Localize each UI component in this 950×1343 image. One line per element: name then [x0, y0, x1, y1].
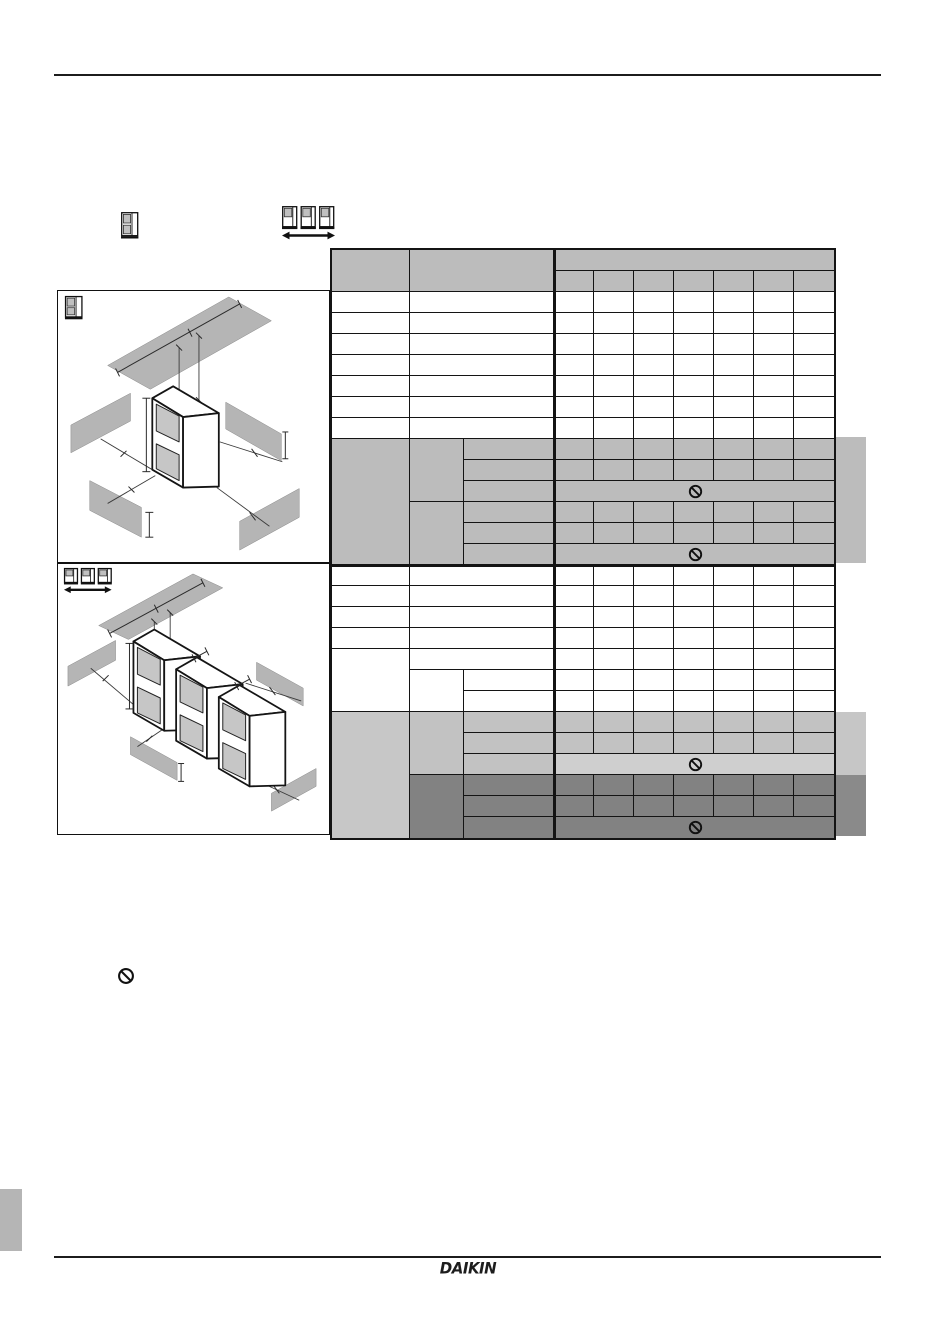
- table-cell-empty: [554, 376, 594, 397]
- table-cell-empty: [714, 607, 754, 628]
- table-cell-empty: [594, 523, 634, 544]
- table-cell-empty: [554, 628, 594, 649]
- table-cell-empty: [594, 691, 634, 712]
- table-cell-empty: [410, 712, 464, 775]
- table-cell-empty: [634, 502, 674, 523]
- table-cell-empty: [332, 628, 410, 649]
- wall-lower-left: [90, 481, 142, 538]
- table-cell-empty: [674, 376, 714, 397]
- table-cell-empty: [634, 439, 674, 460]
- table-cell-empty: [554, 271, 594, 292]
- ceiling-plane: [108, 297, 272, 389]
- table-cell-empty: [754, 586, 794, 607]
- clearance-spec-table: [330, 248, 836, 840]
- table-cell-empty: [594, 733, 634, 754]
- table-cell-empty: [554, 586, 594, 607]
- table-cell-empty: [634, 775, 674, 796]
- table-cell-empty: [634, 271, 674, 292]
- outdoor-unit-3: [219, 685, 286, 786]
- table-cell-empty: [754, 292, 794, 313]
- table-cell-empty: [714, 439, 754, 460]
- table-cell-empty: [634, 586, 674, 607]
- table-cell-empty: [410, 586, 554, 607]
- prohibition-icon: [688, 820, 703, 835]
- table-cell-empty: [714, 313, 754, 334]
- table-cell-empty: [554, 250, 834, 271]
- table-cell-empty: [410, 502, 464, 565]
- table-cell-empty: [794, 397, 834, 418]
- top-rule: [54, 74, 881, 76]
- table-cell-empty: [794, 649, 834, 670]
- table-cell-empty: [754, 502, 794, 523]
- table-cell-empty: [554, 502, 594, 523]
- table-cell-empty: [464, 460, 554, 481]
- table-cell-empty: [332, 607, 410, 628]
- prohibition-icon: [688, 484, 703, 499]
- table-cell-empty: [674, 628, 714, 649]
- three-unit-row-icon-small: [64, 569, 112, 594]
- table-cell-empty: [714, 460, 754, 481]
- table-cell-empty: [754, 355, 794, 376]
- table-cell-empty: [714, 670, 754, 691]
- table-cell-empty: [594, 334, 634, 355]
- table-cell-empty: [464, 817, 554, 838]
- table-cell-empty: [754, 460, 794, 481]
- unit-1: [282, 207, 297, 229]
- table-cell-empty: [554, 292, 594, 313]
- table-cell-empty: [754, 271, 794, 292]
- table-cell-empty: [464, 712, 554, 733]
- table-cell-empty: [410, 628, 554, 649]
- table-cell-empty: [594, 796, 634, 817]
- table-cell-empty: [714, 292, 754, 313]
- table-cell-empty: [464, 523, 554, 544]
- table-cell-empty: [634, 607, 674, 628]
- table-cell-empty: [594, 355, 634, 376]
- table-cell-empty: [754, 733, 794, 754]
- table-cell-empty: [594, 712, 634, 733]
- table-cell-empty: [634, 376, 674, 397]
- table-cell-empty: [332, 292, 410, 313]
- table-cell-empty: [464, 754, 554, 775]
- table-cell-empty: [674, 292, 714, 313]
- table-cell-empty: [754, 439, 794, 460]
- table-cell-empty: [794, 334, 834, 355]
- table-cell-empty: [464, 775, 554, 796]
- table-cell-empty: [554, 565, 594, 586]
- table-cell-empty: [332, 712, 410, 838]
- table-cell-empty: [410, 397, 554, 418]
- table-cell-empty: [754, 691, 794, 712]
- table-cell-empty: [332, 439, 410, 565]
- table-cell-empty: [410, 670, 464, 712]
- table-cell-empty: [410, 418, 554, 439]
- table-cell-empty: [674, 712, 714, 733]
- table-cell-empty: [410, 607, 554, 628]
- table-cell-empty: [714, 733, 754, 754]
- table-cell-empty: [410, 439, 464, 502]
- table-cell-empty: [464, 796, 554, 817]
- table-cell-empty: [794, 565, 834, 586]
- width-arrow-icon: [64, 586, 112, 593]
- table-cell-empty: [554, 439, 594, 460]
- table-cell-empty: [594, 775, 634, 796]
- table-cell-empty: [714, 586, 754, 607]
- table-cell-empty: [674, 418, 714, 439]
- table-cell-empty: [464, 733, 554, 754]
- table-cell-empty: [634, 796, 674, 817]
- table-cell-empty: [332, 397, 410, 418]
- table-cell-empty: [794, 796, 834, 817]
- table-cell-empty: [674, 691, 714, 712]
- brand-logo: DAIKIN: [428, 1258, 508, 1277]
- table-cell-empty: [714, 418, 754, 439]
- table-cell-empty: [410, 355, 554, 376]
- table-cell-empty: [714, 334, 754, 355]
- table-cell-empty: [554, 733, 594, 754]
- table-cell-empty: [554, 355, 594, 376]
- table-cell-empty: [410, 376, 554, 397]
- table-cell-empty: [794, 586, 834, 607]
- table-cell-empty: [634, 733, 674, 754]
- table-cell-empty: [332, 355, 410, 376]
- table-cell-empty: [634, 460, 674, 481]
- table-cell-empty: [794, 439, 834, 460]
- table-cell-empty: [634, 355, 674, 376]
- table-cell-empty: [554, 691, 594, 712]
- table-cell-empty: [464, 691, 554, 712]
- table-cell-empty: [714, 775, 754, 796]
- table-cell-empty: [714, 565, 754, 586]
- table-cell-empty: [634, 649, 674, 670]
- table-cell-empty: [754, 376, 794, 397]
- table-cell-empty: [674, 670, 714, 691]
- table-cell-empty: [634, 397, 674, 418]
- table-cell-empty: [754, 670, 794, 691]
- table-cell-empty: [554, 607, 594, 628]
- table-cell-empty: [794, 523, 834, 544]
- table-cell-empty: [594, 313, 634, 334]
- table-cell-empty: [594, 607, 634, 628]
- table-cell-empty: [674, 460, 714, 481]
- table-cell-empty: [754, 775, 794, 796]
- table-cell-empty: [674, 565, 714, 586]
- table-cell-empty: [332, 418, 410, 439]
- table-cell-empty: [594, 292, 634, 313]
- three-unit-row-icon: [282, 206, 335, 241]
- table-cell-empty: [464, 439, 554, 460]
- table-cell-empty: [674, 649, 714, 670]
- table-cell-empty: [332, 376, 410, 397]
- table-cell-empty: [754, 712, 794, 733]
- table-cell-empty: [634, 334, 674, 355]
- table-cell-empty: [794, 376, 834, 397]
- table-cell-empty: [674, 733, 714, 754]
- table-cell-empty: [794, 712, 834, 733]
- table-cell-empty: [674, 502, 714, 523]
- table-cell-empty: [754, 334, 794, 355]
- table-cell-empty: [754, 649, 794, 670]
- side-tab-block2-dark: [836, 775, 866, 836]
- table-cell-empty: [754, 397, 794, 418]
- unit-2: [301, 207, 316, 229]
- table-cell-empty: [674, 775, 714, 796]
- table-cell-empty: [594, 586, 634, 607]
- installation-diagram-unit-row: [57, 563, 330, 835]
- table-cell-empty: [794, 502, 834, 523]
- table-cell-empty: [554, 397, 594, 418]
- table-cell-empty: [332, 565, 410, 586]
- table-cell-empty: [794, 733, 834, 754]
- table-cell-empty: [594, 439, 634, 460]
- table-cell-empty: [754, 523, 794, 544]
- prohibition-icon: [117, 967, 135, 985]
- table-cell-empty: [594, 649, 634, 670]
- table-cell-empty: [594, 376, 634, 397]
- table-cell-empty: [554, 670, 594, 691]
- table-cell-empty: [554, 649, 594, 670]
- table-cell-empty: [674, 796, 714, 817]
- table-cell-empty: [410, 292, 554, 313]
- table-cell-empty: [634, 565, 674, 586]
- table-cell-empty: [714, 376, 754, 397]
- table-cell-empty: [464, 481, 554, 502]
- table-cell-empty: [794, 691, 834, 712]
- table-cell-empty: [634, 523, 674, 544]
- table-cell-empty: [714, 271, 754, 292]
- wall-height-bracket-left: [145, 512, 153, 537]
- table-cell-empty: [332, 649, 410, 712]
- table-cell-empty: [554, 418, 594, 439]
- outdoor-unit: [152, 386, 219, 487]
- table-cell-empty: [674, 334, 714, 355]
- table-cell-empty: [594, 670, 634, 691]
- table-cell-empty: [674, 523, 714, 544]
- wall-height-bracket-left: [178, 764, 184, 782]
- table-cell-empty: [554, 334, 594, 355]
- prohibition-cell: [554, 754, 834, 775]
- unit-3: [319, 207, 334, 229]
- prohibition-icon: [688, 757, 703, 772]
- table-cell-empty: [754, 565, 794, 586]
- side-tab-block1: [836, 437, 866, 563]
- page-edge-tab: [0, 1189, 22, 1251]
- single-unit-icon-small: [65, 297, 83, 320]
- table-cell-empty: [554, 523, 594, 544]
- table-cell-empty: [714, 712, 754, 733]
- table-cell-empty: [674, 439, 714, 460]
- table-cell-empty: [674, 271, 714, 292]
- table-cell-empty: [754, 418, 794, 439]
- table-cell-empty: [754, 628, 794, 649]
- table-cell-empty: [410, 334, 554, 355]
- table-cell-empty: [634, 712, 674, 733]
- unit-height-bracket: [142, 398, 150, 471]
- table-cell-empty: [754, 313, 794, 334]
- table-cell-empty: [634, 691, 674, 712]
- table-cell-empty: [594, 418, 634, 439]
- table-cell-empty: [594, 397, 634, 418]
- prohibition-cell: [554, 544, 834, 565]
- table-cell-empty: [714, 523, 754, 544]
- wall-upper-left: [68, 640, 116, 686]
- table-cell-empty: [554, 796, 594, 817]
- table-cell-empty: [714, 355, 754, 376]
- table-cell-empty: [594, 460, 634, 481]
- table-cell-empty: [594, 628, 634, 649]
- table-cell-empty: [594, 502, 634, 523]
- table-cell-empty: [554, 775, 594, 796]
- wall-lower-right: [240, 489, 300, 551]
- table-cell-empty: [464, 670, 554, 691]
- single-unit-icon: [121, 212, 139, 239]
- table-cell-empty: [714, 397, 754, 418]
- wall-lower-left: [130, 737, 177, 781]
- table-cell-empty: [554, 712, 594, 733]
- table-cell-empty: [794, 271, 834, 292]
- table-cell-empty: [714, 691, 754, 712]
- table-cell-empty: [754, 607, 794, 628]
- table-cell-empty: [794, 292, 834, 313]
- table-cell-empty: [332, 334, 410, 355]
- width-arrow-icon: [282, 232, 335, 240]
- table-cell-empty: [714, 649, 754, 670]
- table-cell-empty: [554, 313, 594, 334]
- table-cell-empty: [674, 586, 714, 607]
- prohibition-cell: [554, 817, 834, 838]
- table-cell-empty: [554, 460, 594, 481]
- table-cell-empty: [332, 250, 410, 292]
- table-cell-empty: [794, 607, 834, 628]
- table-cell-empty: [464, 544, 554, 565]
- table-cell-empty: [410, 250, 554, 292]
- table-cell-empty: [634, 313, 674, 334]
- table-cell-empty: [674, 355, 714, 376]
- table-cell-empty: [714, 502, 754, 523]
- table-cell-empty: [794, 670, 834, 691]
- table-cell-empty: [634, 670, 674, 691]
- table-cell-empty: [634, 628, 674, 649]
- table-cell-empty: [674, 313, 714, 334]
- table-cell-empty: [464, 502, 554, 523]
- table-cell-empty: [794, 460, 834, 481]
- table-cell-empty: [594, 271, 634, 292]
- table-cell-empty: [794, 775, 834, 796]
- side-tab-block2-light: [836, 712, 866, 775]
- table-cell-empty: [674, 607, 714, 628]
- table-cell-empty: [794, 628, 834, 649]
- wall-height-bracket-right: [282, 432, 288, 459]
- wall-upper-left: [71, 393, 131, 453]
- table-cell-empty: [332, 313, 410, 334]
- table-cell-empty: [594, 565, 634, 586]
- table-cell-empty: [410, 649, 554, 670]
- table-cell-empty: [794, 418, 834, 439]
- table-cell-empty: [410, 313, 554, 334]
- table-cell-empty: [634, 292, 674, 313]
- prohibition-icon: [688, 547, 703, 562]
- table-cell-empty: [754, 796, 794, 817]
- installation-diagram-single-unit: [57, 290, 330, 563]
- table-cell-empty: [410, 565, 554, 586]
- table-cell-empty: [634, 418, 674, 439]
- table-cell-empty: [410, 775, 464, 838]
- prohibition-cell: [554, 481, 834, 502]
- table-cell-empty: [714, 796, 754, 817]
- table-cell-empty: [714, 628, 754, 649]
- table-cell-empty: [794, 313, 834, 334]
- table-cell-empty: [332, 586, 410, 607]
- table-cell-empty: [794, 355, 834, 376]
- table-cell-empty: [674, 397, 714, 418]
